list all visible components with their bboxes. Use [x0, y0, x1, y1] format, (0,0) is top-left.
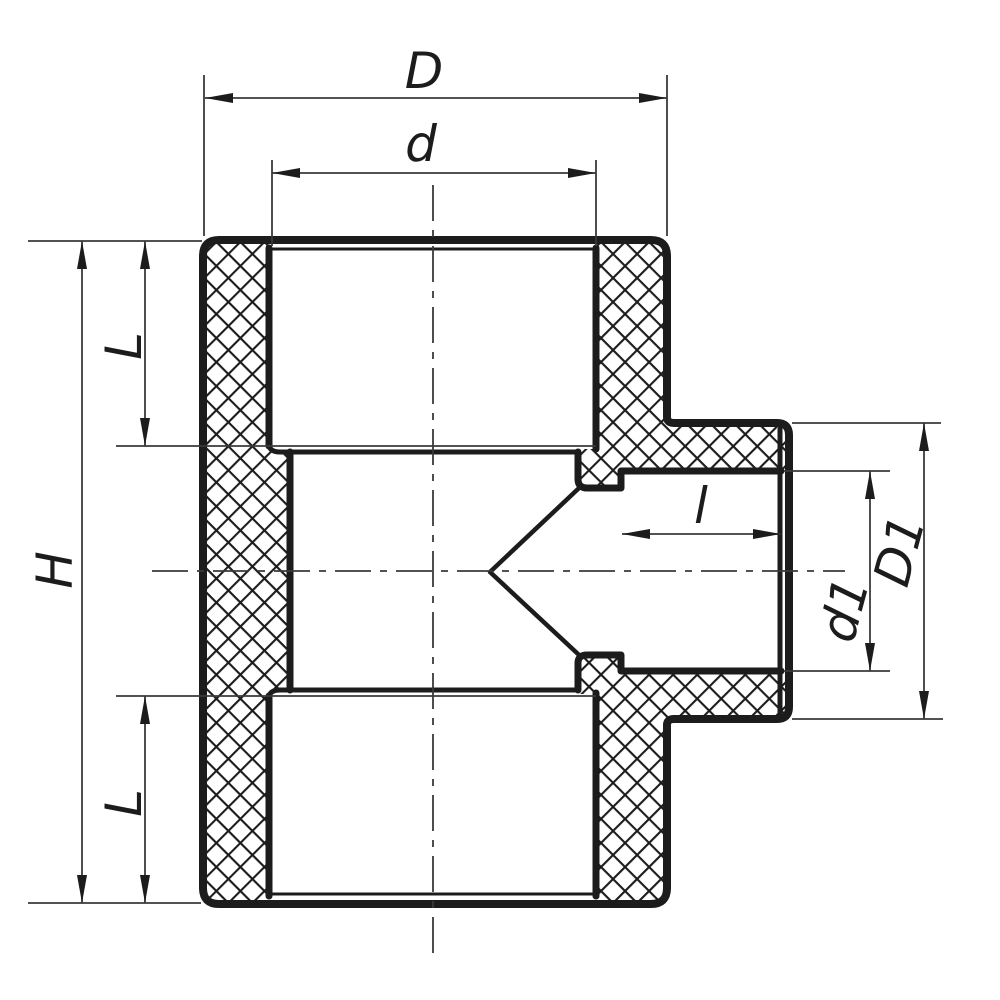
arrowhead-left	[272, 168, 300, 178]
arrowhead-up	[919, 423, 929, 451]
arrowhead-right	[568, 168, 596, 178]
arrowhead-down	[77, 875, 87, 903]
dimension-branch-socket-depth: l	[622, 477, 781, 539]
arrowhead-down	[140, 875, 150, 903]
label-H: H	[26, 551, 84, 589]
dimension-run-socket-bore: d	[272, 115, 596, 246]
dimension-socket-depth-top: L	[28, 241, 596, 446]
label-D1: D1	[862, 509, 936, 592]
label-d: d	[405, 115, 437, 173]
arrowhead-down	[919, 691, 929, 719]
label-l: l	[694, 477, 708, 535]
label-L-top: L	[95, 332, 153, 360]
hatch-right-lower-wall	[578, 655, 785, 900]
arrowhead-right	[753, 529, 781, 539]
arrowhead-up	[865, 471, 875, 499]
label-D: D	[405, 42, 444, 100]
arrowhead-up	[140, 241, 150, 269]
arrowhead-up	[140, 696, 150, 724]
arrowhead-down	[865, 643, 875, 671]
label-L-bottom: L	[95, 789, 153, 817]
technical-drawing: D d L L H l	[0, 0, 1000, 1000]
arrowhead-down	[140, 418, 150, 446]
bore-lines	[269, 248, 781, 896]
dimension-branch-outer-diameter: D1	[792, 423, 943, 719]
hatch-left-wall	[207, 244, 290, 900]
arrowhead-up	[77, 241, 87, 269]
arrowhead-right	[639, 93, 667, 103]
crosshatch-walls	[207, 244, 785, 900]
arrowhead-left	[205, 93, 233, 103]
arrowhead-left	[622, 529, 650, 539]
drawing-canvas: D d L L H l	[0, 0, 1000, 1000]
dimension-socket-depth-bottom: L	[95, 696, 596, 903]
hatch-right-upper-wall	[578, 244, 785, 488]
